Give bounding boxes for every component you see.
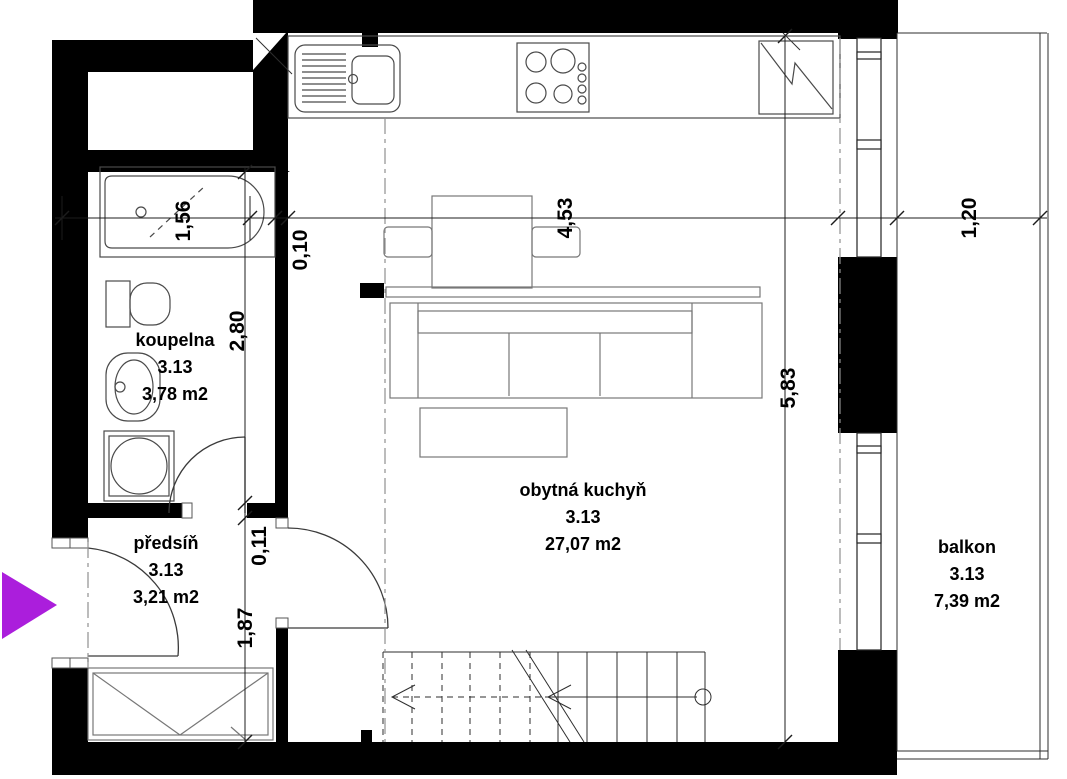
- wall-pier-bottom-right: [838, 650, 897, 742]
- kitchen-sink: [295, 45, 400, 112]
- wall-pier-mid-right: [838, 257, 897, 433]
- toilet-bowl: [130, 283, 170, 325]
- stairs: [383, 650, 711, 742]
- room-name: předsíň: [96, 530, 236, 557]
- room-area: 3,78 m2: [105, 381, 245, 408]
- dim-wall-thickness: 0,10: [289, 230, 313, 271]
- wall-shaft-bottom: [52, 150, 265, 172]
- burner-icon: [526, 83, 546, 103]
- wardrobe-inner: [93, 673, 268, 735]
- stairs-break-line: [526, 650, 584, 742]
- fridge-outline: [759, 41, 833, 114]
- bath-door-swing: [169, 437, 245, 513]
- counter-outline: [288, 36, 840, 118]
- stairs-break-line: [512, 650, 570, 742]
- knob-icon: [578, 96, 586, 104]
- floorplan-page: koupelna 3.13 3,78 m2 předsíň 3.13 3,21 …: [0, 0, 1067, 779]
- wardrobe-cross-line: [93, 673, 180, 735]
- room-number: 3.13: [105, 354, 245, 381]
- wardrobe-cross-line: [180, 673, 268, 735]
- room-area: 3,21 m2: [96, 584, 236, 611]
- window-upper-transom-icon: [857, 52, 881, 59]
- burner-icon: [554, 85, 572, 103]
- room-number: 3.13: [96, 557, 236, 584]
- faucet-icon: [349, 75, 358, 84]
- window-upper-transom-icon: [857, 140, 881, 149]
- window-lower-transom-icon: [857, 446, 881, 453]
- knob-icon: [578, 74, 586, 82]
- washing-machine-inner: [109, 436, 169, 496]
- burner-icon: [551, 49, 575, 73]
- dim-bath-length: 2,80: [226, 311, 250, 352]
- sink-drainboard: [302, 54, 346, 102]
- wall-left-lower: [52, 668, 88, 742]
- washing-machine-outline: [104, 431, 174, 501]
- walk-start-icon: [695, 689, 711, 705]
- entry-arrow-icon: [2, 572, 57, 639]
- coffee-table: [420, 408, 567, 457]
- sofa-outline: [390, 303, 762, 398]
- room-name: koupelna: [105, 327, 245, 354]
- tv-icon: [360, 283, 384, 298]
- sofa: [390, 303, 762, 398]
- room-label-koupelna: koupelna 3.13 3,78 m2: [105, 327, 245, 408]
- room-name: balkon: [887, 534, 1047, 561]
- dim-bath-width: 1,56: [172, 201, 196, 242]
- fridge: [759, 41, 833, 114]
- wall-bath-east: [275, 172, 288, 503]
- door-jamb: [276, 618, 288, 628]
- dim-living-width: 4,53: [554, 198, 578, 239]
- door-jamb: [182, 503, 192, 518]
- dim-hall-length: 1,87: [234, 608, 258, 649]
- chair: [384, 227, 432, 257]
- wall-stair-stub: [361, 730, 372, 742]
- room-name: obytná kuchyň: [483, 477, 683, 504]
- kitchen-counter: [288, 36, 840, 118]
- room-label-balkon: balkon 3.13 7,39 m2: [887, 534, 1047, 615]
- stove: [517, 43, 589, 112]
- room-label-predsin: předsíň 3.13 3,21 m2: [96, 530, 236, 611]
- balcony-railing: [897, 33, 1048, 759]
- fridge-symbol-icon: [761, 43, 832, 109]
- sofa-backrest: [418, 311, 692, 333]
- room-area: 27,07 m2: [483, 531, 683, 558]
- wall-top: [253, 0, 898, 33]
- burner-icon: [526, 52, 546, 72]
- window-lower-transom-icon: [857, 534, 881, 543]
- washing-machine-drum-icon: [111, 438, 167, 494]
- drain-icon: [136, 207, 146, 217]
- table-top: [432, 196, 532, 288]
- tv-wall: [360, 283, 760, 298]
- room-label-obytna-kuchyn: obytná kuchyň 3.13 27,07 m2: [483, 477, 683, 558]
- room-number: 3.13: [483, 504, 683, 531]
- room-number: 3.13: [887, 561, 1047, 588]
- room-area: 7,39 m2: [887, 588, 1047, 615]
- sink-bowl: [352, 56, 394, 104]
- dim-partition: 0,11: [248, 526, 272, 566]
- dining-table: [384, 196, 580, 288]
- wall-bath-south-east: [247, 503, 288, 518]
- wall-bath-south-west: [88, 503, 190, 518]
- wall-hall-east: [276, 628, 288, 742]
- dim-living-length: 5,83: [777, 368, 801, 409]
- hall-door-swing: [288, 528, 388, 628]
- dim-balcony-depth: 1,20: [958, 198, 982, 239]
- knob-icon: [578, 63, 586, 71]
- knob-icon: [578, 85, 586, 93]
- toilet: [106, 281, 170, 327]
- door-jamb: [276, 518, 288, 528]
- toilet-tank: [106, 281, 130, 327]
- washing-machine: [104, 431, 174, 501]
- wall-left-upper: [52, 40, 88, 538]
- wall-bottom: [52, 742, 897, 775]
